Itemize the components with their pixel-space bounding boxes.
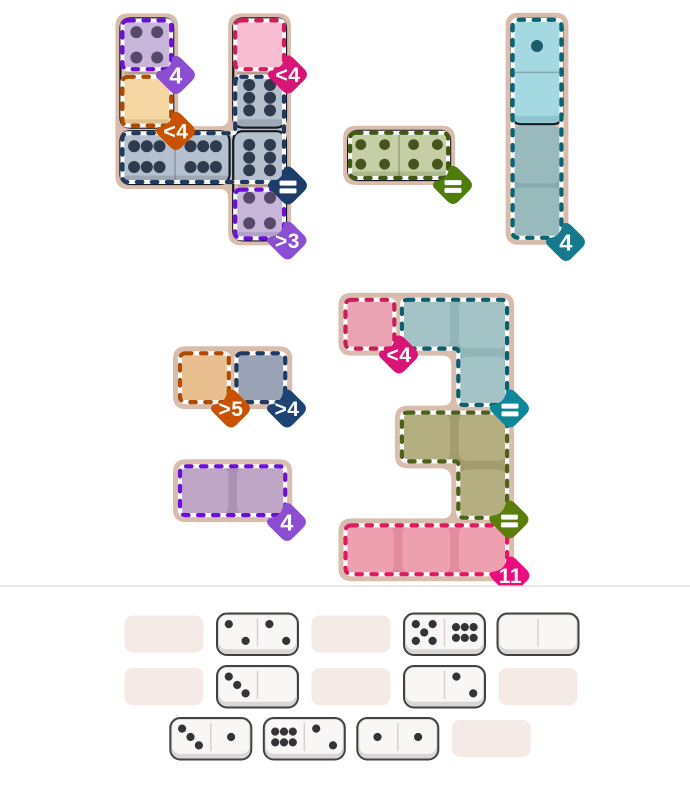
- svg-text:>5: >5: [219, 398, 244, 421]
- svg-text:4: 4: [280, 510, 294, 536]
- svg-text:4: 4: [559, 230, 573, 256]
- svg-text:<4: <4: [164, 121, 189, 144]
- svg-text:>3: >3: [275, 230, 300, 253]
- svg-text:>4: >4: [275, 398, 300, 421]
- svg-text:<4: <4: [387, 344, 412, 367]
- svg-text:<4: <4: [276, 64, 301, 87]
- svg-text:11: 11: [499, 565, 522, 588]
- svg-text:4: 4: [169, 63, 183, 89]
